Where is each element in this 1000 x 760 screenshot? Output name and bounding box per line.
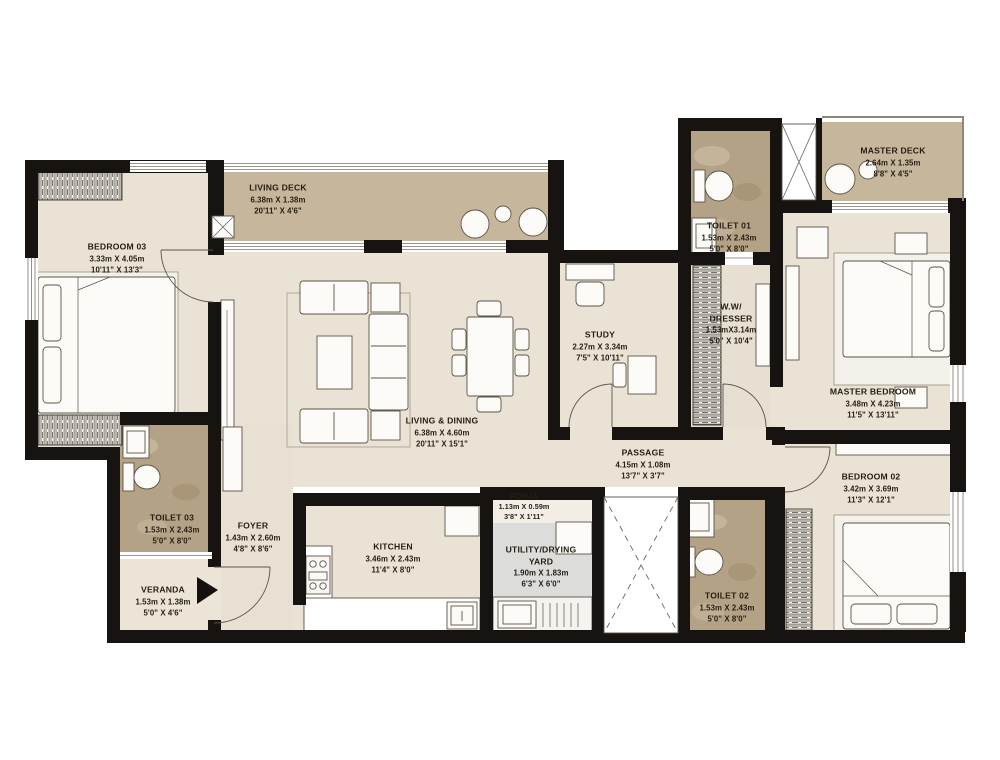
room-label-veranda: VERANDA 1.53m X 1.38m 5'0" X 4'6" — [135, 584, 190, 618]
bed — [36, 272, 178, 418]
dresser — [786, 266, 799, 360]
stove-icon — [306, 556, 330, 594]
window — [130, 161, 206, 172]
room-label-passage: PASSAGE 4.15m X 1.08m 13'7" X 3'7" — [615, 447, 670, 481]
room-label-foyer: FOYER 1.43m X 2.60m 4'8" X 8'6" — [225, 520, 280, 554]
wardrobe-box — [797, 227, 828, 258]
floor-plan: BEDROOM 03 3.33m X 4.05m 10'11" X 13'3" … — [0, 0, 1000, 760]
room-label-utility: UTILITY/DRYING YARD 1.90m X 1.83m 6'3" X… — [499, 545, 583, 590]
room-label-living-deck: LIVING DECK 6.38m X 1.38m 20'11" X 4'6" — [249, 182, 307, 216]
tv-unit — [221, 300, 234, 440]
window — [25, 258, 38, 320]
room-label-toilet-01: TOILET 01 1.53m X 2.43m 5'0" X 8'0" — [701, 220, 756, 254]
duct-x-icon — [212, 216, 234, 238]
room-label-toilet-02: TOILET 02 1.53m X 2.43m 5'0" X 8'0" — [699, 590, 754, 624]
toilet-wc-icon — [694, 170, 733, 202]
utility-sink-icon — [493, 597, 592, 632]
window — [950, 365, 966, 402]
sink-icon — [123, 426, 149, 458]
room-label-bedroom-02: BEDROOM 02 3.42m X 3.69m 11'3" X 12'1" — [842, 471, 901, 505]
shaft-x-icon — [604, 497, 678, 633]
toilet-wc-icon — [123, 463, 160, 491]
room-label-study: STUDY 2.27m X 3.34m 7'5" X 10'11" — [572, 329, 627, 363]
window — [120, 552, 212, 559]
window — [950, 492, 966, 572]
kitchen-sink-icon — [447, 602, 477, 629]
room-label-pooja: POOJA 1.13m X 0.59m 3'8" X 1'11" — [499, 492, 550, 522]
shoe-cabinet — [223, 427, 242, 491]
room-label-bedroom-03: BEDROOM 03 3.33m X 4.05m 10'11" X 13'3" — [88, 241, 147, 275]
wardrobe-icon — [38, 415, 122, 445]
wardrobe-icon — [38, 170, 122, 200]
room-label-kitchen: KITCHEN 3.46m X 2.43m 11'4" X 8'0" — [365, 541, 420, 575]
room-label-master-deck: MASTER DECK 2.64m X 1.35m 8'8" X 4'5" — [860, 145, 925, 179]
fridge-icon — [445, 506, 479, 536]
room-label-master-bedroom: MASTER BEDROOM 3.48m X 4.23m 11'5" X 13'… — [830, 386, 916, 420]
shaft-x-icon — [782, 124, 816, 200]
coffee-table — [317, 336, 352, 389]
room-label-ww-dresser: W.W/ DRESSER 1.53mX3.14m 5'0" X 10'4" — [700, 302, 762, 347]
room-label-living-dining: LIVING & DINING 6.38m X 4.60m 20'11" X 1… — [406, 415, 479, 449]
door-gap — [725, 253, 753, 263]
window — [224, 161, 548, 172]
window — [832, 201, 948, 212]
wardrobe-icon — [786, 509, 812, 633]
floor-plan-drawing — [0, 0, 1000, 760]
room-label-toilet-03: TOILET 03 1.53m X 2.43m 5'0" X 8'0" — [144, 512, 199, 546]
